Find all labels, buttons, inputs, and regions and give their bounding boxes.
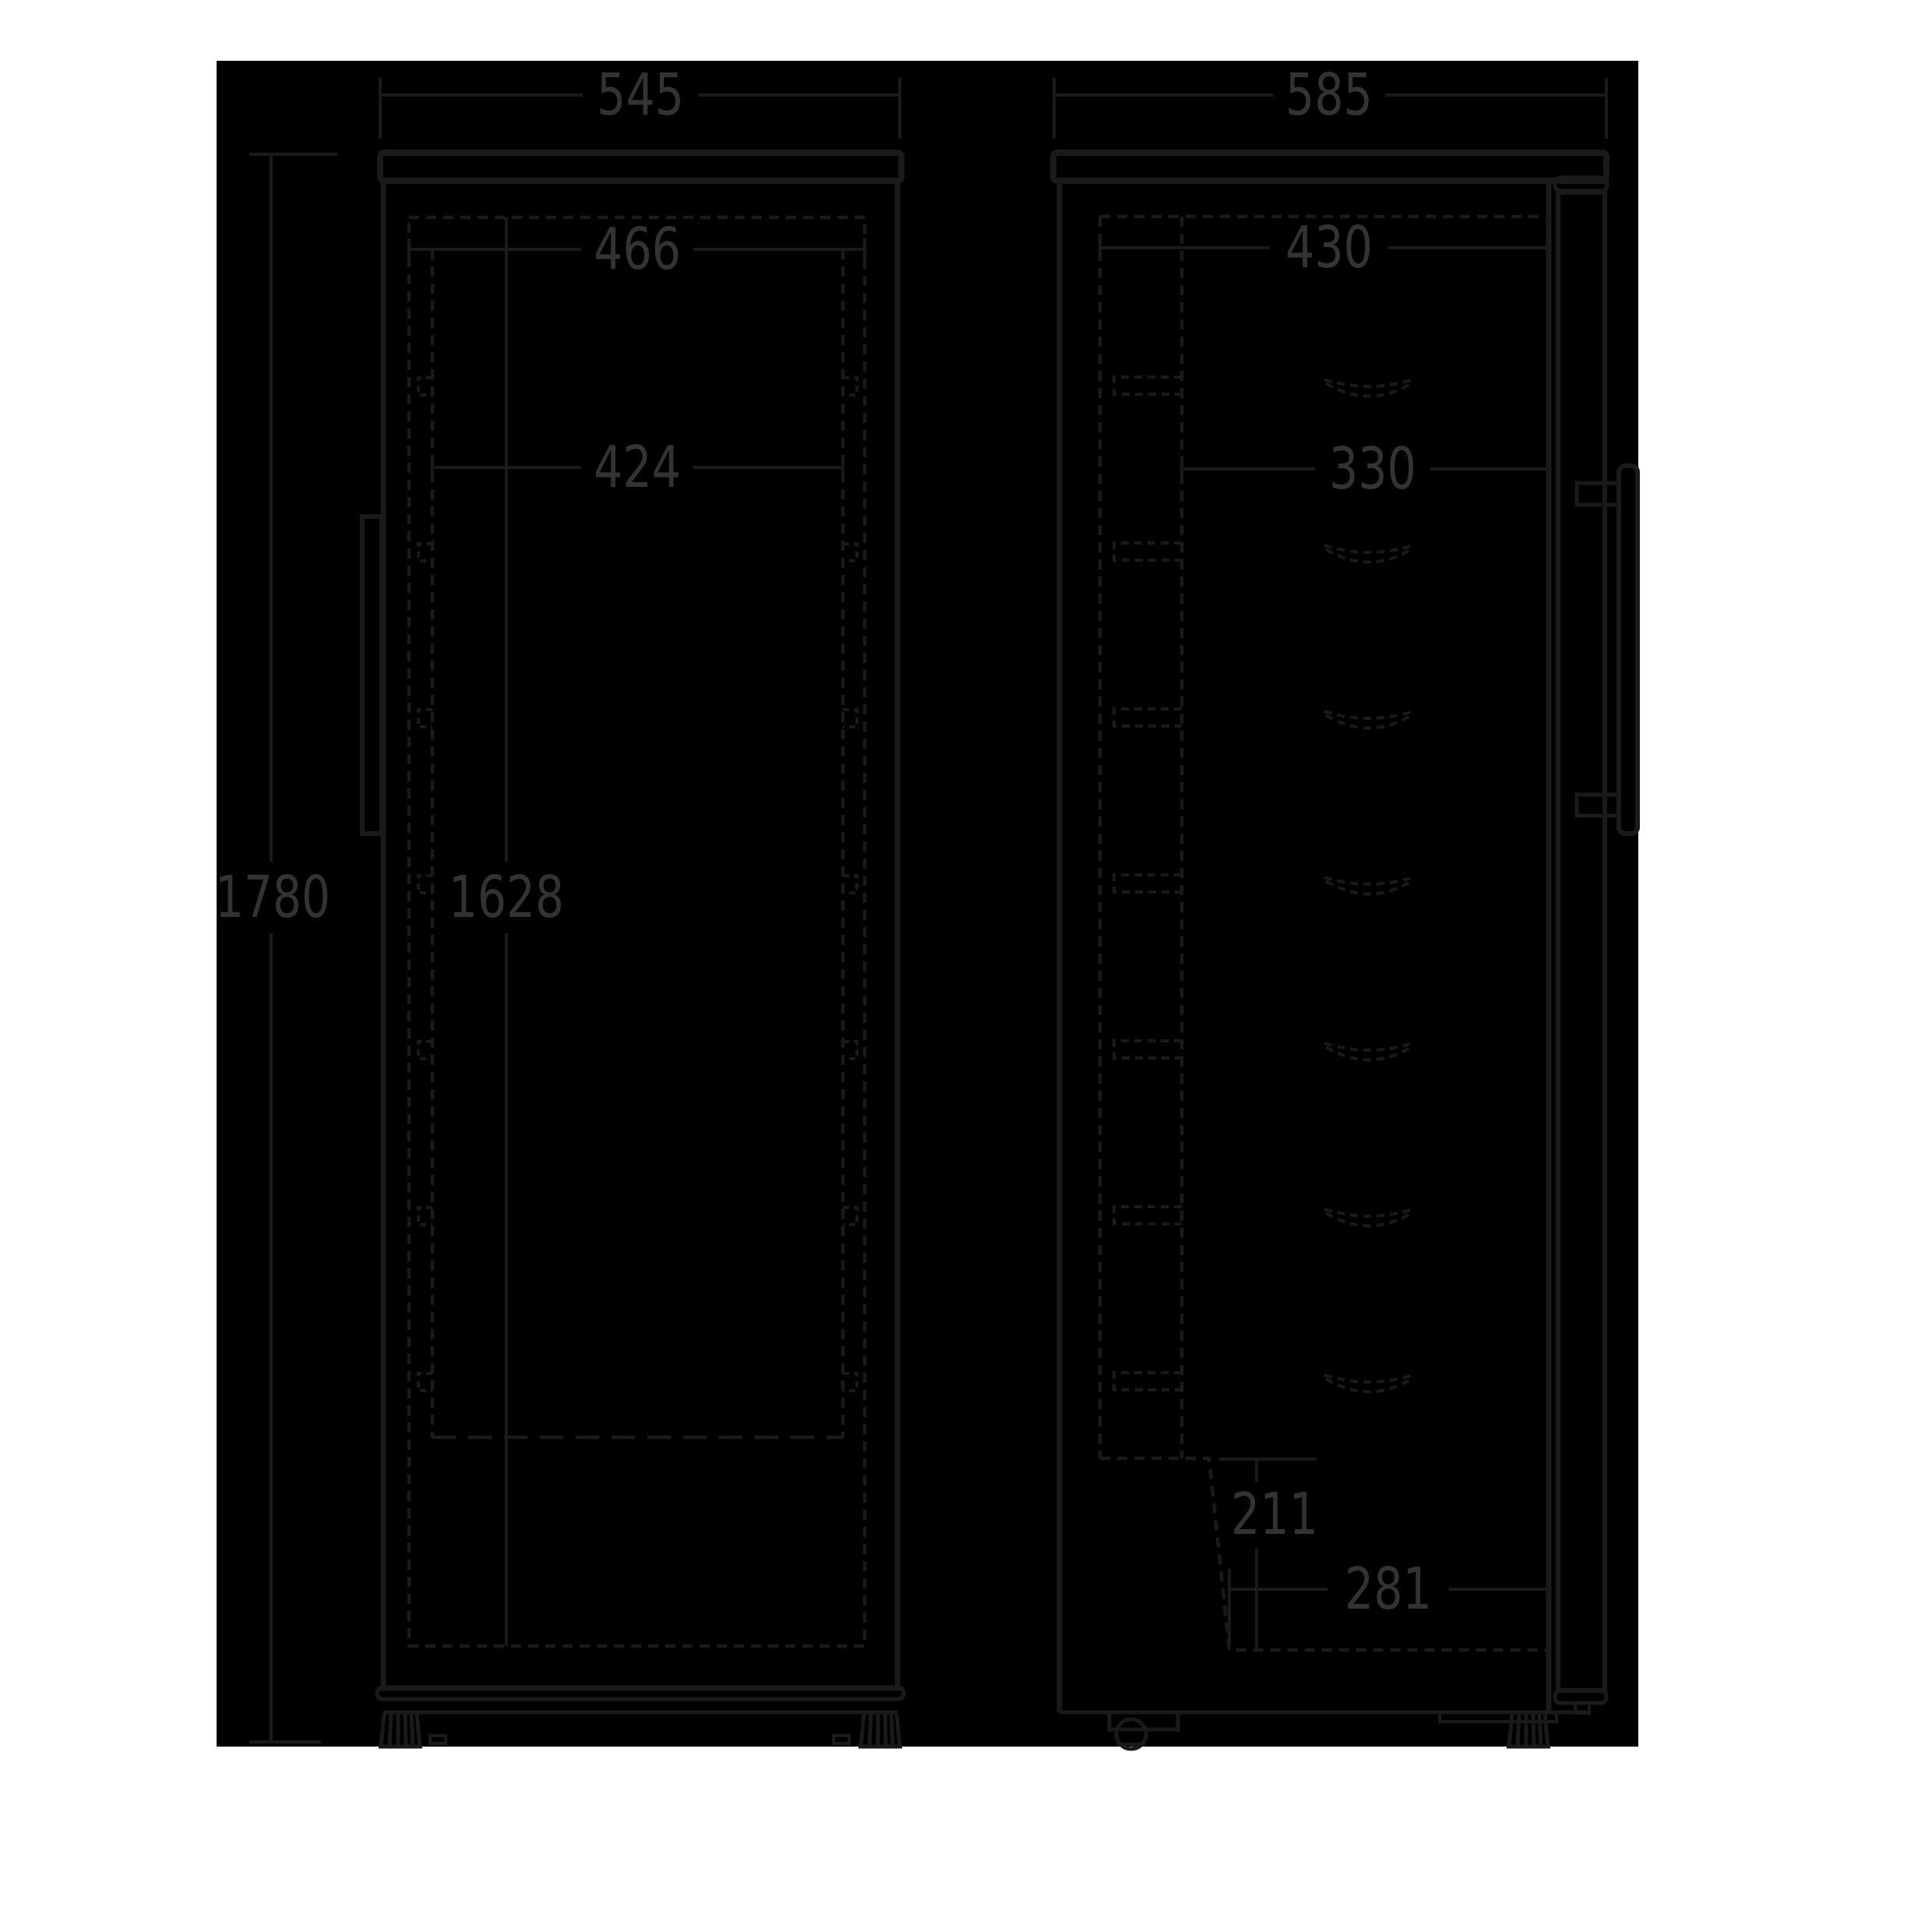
side-inner-depth-label: 430: [1285, 214, 1373, 281]
side-base-depth-label: 281: [1345, 1556, 1432, 1623]
front-inner-width-label: 424: [594, 434, 681, 501]
side-depth-label: 585: [1285, 62, 1373, 129]
front-height-label: 1780: [215, 864, 330, 931]
drawing-canvas: [217, 61, 1638, 1747]
front-width-label: 545: [597, 62, 684, 129]
side-base-height-label: 211: [1231, 1481, 1318, 1548]
side-shelf-depth-label: 330: [1329, 435, 1416, 502]
front-inner-height-label: 1628: [449, 864, 564, 931]
front-opening-width-label: 466: [594, 216, 681, 283]
refrigerator-dimension-drawing: 545 466 424 1780 1628 585 430 330 211 28…: [0, 0, 1932, 1932]
